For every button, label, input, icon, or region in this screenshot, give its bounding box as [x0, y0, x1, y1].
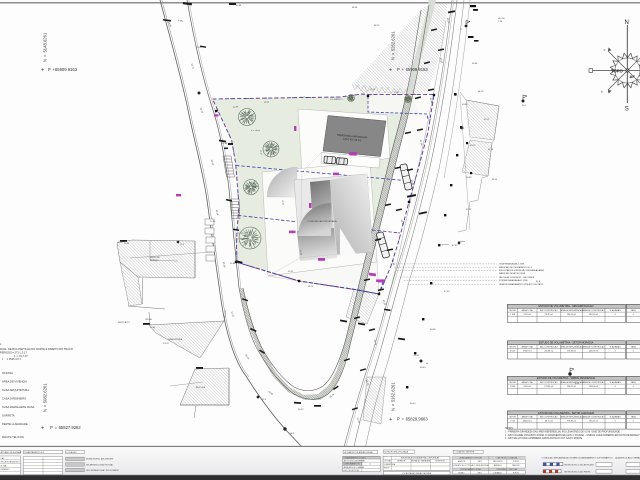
svg-text:4: 4 [633, 350, 634, 352]
svg-text:SARJETAO DE APOIO GUIA: SARJETAO DE APOIO GUIA [499, 272, 526, 275]
svg-text:CASA ARQUITETURA: CASA ARQUITETURA [2, 388, 29, 392]
svg-text:R 106: R 106 [510, 386, 515, 388]
svg-text:NOTAS:: NOTAS: [505, 427, 514, 430]
svg-text:N. ALVARAS: N. ALVARAS [610, 415, 621, 418]
svg-text:8150 m2: 8150 m2 [524, 386, 531, 388]
svg-text:OBS PROFIL / LEVATUAL: OBS PROFIL / LEVATUAL [496, 457, 517, 460]
svg-text:N. ALVARAS: N. ALVARAS [610, 345, 621, 348]
svg-text:47.30: 47.30 [444, 291, 450, 293]
svg-text:ESTUDO DE VOLUMETRIA - SETOR M: ESTUDO DE VOLUMETRIA - SETOR MORADIA [539, 342, 594, 345]
svg-text:PONTO: PONTO [513, 461, 520, 463]
svg-text:4: 4 [633, 314, 634, 316]
svg-text:+: + [389, 68, 392, 74]
svg-text:AREA TOTAL: AREA TOTAL [522, 381, 533, 384]
svg-text:N = 5082.6261: N = 5082.6261 [43, 383, 48, 412]
svg-text:SETOR: SETOR [509, 346, 516, 348]
svg-text:LAVOURDO: LAVOURDO [493, 460, 504, 463]
svg-text:COMPLEMENTO N: COMPLEMENTO N [344, 464, 361, 466]
svg-text:4: 4 [615, 350, 616, 352]
svg-text:4: 4 [370, 464, 371, 466]
svg-text:VELANTERIOLOGIA / ROT.NAL: VELANTERIOLOGIA / ROT.NAL [86, 463, 113, 466]
svg-text:CONDICAO IMPLANTACAO SOBRE LEV: CONDICAO IMPLANTACAO SOBRE LEVANTAMENTO … [542, 456, 640, 459]
svg-text:PERTE LLARADADE: PERTE LLARADADE [2, 422, 28, 426]
svg-text:PAV DE AR CONCRETO - CAL VERDE: PAV DE AR CONCRETO - CAL VERDE [499, 276, 535, 279]
svg-text:MURO DE: MURO DE [150, 257, 160, 259]
svg-text:AF: AF [630, 74, 636, 79]
svg-text:A PLANO DE ESCALA: A PLANO DE ESCALA [1, 451, 22, 454]
svg-text:50.96: 50.96 [124, 243, 130, 245]
svg-text:C QUADRO SINTESE: C QUADRO SINTESE [454, 451, 475, 454]
svg-text:a.v. abeto: a.v. abeto [251, 129, 261, 132]
svg-text:4: 4 [615, 386, 616, 388]
svg-text:LEVANTAMENTO N 2: LEVANTAMENTO N 2 [24, 451, 45, 454]
svg-text:L 1 1545 3 0.7: L 1 1545 3 0.7 [2, 357, 22, 361]
svg-text:TR: TR [573, 378, 576, 380]
svg-text:185.87 m2: 185.87 m2 [589, 421, 598, 423]
svg-text:TOPO: TOPO [611, 68, 624, 73]
svg-text:AREA DE IMPLANTACAO: AREA DE IMPLANTACAO [560, 345, 583, 348]
svg-text:N. ALVARAS: N. ALVARAS [610, 381, 621, 384]
svg-text:2 - EST VOLUME CONJUNTO FORM.: 2 - EST VOLUME CONJUNTO FORM. O GRANDEZA… [505, 434, 640, 437]
svg-text:+: + [41, 426, 44, 432]
svg-text:49.68: 49.68 [236, 5, 242, 7]
svg-text:46.40: 46.40 [420, 367, 426, 369]
svg-text:SARJETAO DE CRUZAMENTO: SARJETAO DE CRUZAMENTO [499, 266, 528, 269]
svg-text:SETOR: SETOR [509, 416, 516, 418]
svg-text:PROJETO ARQUITETO: PROJETO ARQUITETO [1, 461, 21, 464]
svg-text:AGENTE: AGENTE [458, 460, 466, 463]
svg-text:CASA JARDINEIRO: CASA JARDINEIRO [2, 397, 26, 401]
svg-text:L TOTAL: L TOTAL [384, 460, 391, 463]
svg-text:88.75 m2: 88.75 m2 [545, 421, 553, 423]
svg-text:48.70: 48.70 [308, 286, 314, 288]
svg-text:+: + [389, 417, 392, 423]
svg-text:ARL CONSTRUCAO: ARL CONSTRUCAO [540, 381, 558, 384]
svg-text:ROUTE TELICON: ROUTE TELICON [2, 435, 24, 439]
svg-text:48.96: 48.96 [352, 7, 358, 9]
svg-text:IMPLANTACAO/PLANIMETRIA COMPLE: IMPLANTACAO/PLANIMETRIA COMPLETA AR [401, 457, 440, 460]
svg-text:AREA DE CONSTRUCAO: AREA DE CONSTRUCAO [583, 345, 606, 348]
svg-text:AREA DE CONSTRUCAO: AREA DE CONSTRUCAO [583, 415, 606, 418]
svg-text:RUAL DE BUA PARTILHA DO NORTE: RUAL DE BUA PARTILHA DO NORTE E DIREITO … [0, 347, 73, 351]
svg-text:PISOS: PISOS [384, 467, 390, 469]
svg-text:48.70: 48.70 [374, 25, 380, 27]
svg-text:P +65909.9163: P +65909.9163 [48, 67, 78, 72]
svg-text:SETOR: SETOR [509, 382, 516, 384]
svg-text:AREA TOTAL: AREA TOTAL [522, 415, 533, 418]
svg-text:76.85 m2: 76.85 m2 [545, 314, 553, 316]
svg-text:L 108: L 108 [510, 314, 515, 316]
svg-text:LAVRADO: LAVRADO [494, 471, 503, 474]
svg-text:N = 5162.6261: N = 5162.6261 [391, 382, 396, 411]
svg-text:1 - PRIMEIRA GRANDEZA DAS AREA: 1 - PRIMEIRA GRANDEZA DAS AREA REFERENCI… [505, 431, 621, 434]
svg-text:LOCALIZACAO GERAL DA OBRA: LOCALIZACAO GERAL DA OBRA [402, 472, 432, 475]
svg-text:123.85 m2: 123.85 m2 [544, 386, 553, 388]
svg-text:ARL CONSTRUCAO: ARL CONSTRUCAO [540, 345, 558, 348]
svg-text:49.02: 49.02 [288, 271, 294, 273]
svg-text:PONTO: PONTO [513, 472, 520, 474]
svg-text:50.86: 50.86 [230, 263, 236, 265]
svg-text:DESENHO: DESENHO [1, 469, 10, 471]
svg-text:PV.50: PV.50 [196, 47, 202, 49]
svg-text:SONDATO IN LOTTO: SONDATO IN LOTTO [453, 464, 471, 467]
svg-text:LADO VERDE/LER AR: LADO VERDE/LER AR [470, 464, 489, 467]
svg-text:AREA DE CONSTRUCAO: AREA DE CONSTRUCAO [583, 309, 606, 312]
svg-text:4: 4 [615, 421, 616, 423]
svg-text:a.v. gertevo: a.v. gertevo [438, 243, 450, 246]
svg-text:4: 4 [633, 386, 634, 388]
svg-text:+: + [41, 68, 44, 74]
svg-text:CASA RAMALHETE RASA: CASA RAMALHETE RASA [2, 405, 35, 409]
svg-text:281.88 m2: 281.88 m2 [544, 350, 553, 352]
svg-text:TAXA: TAXA [631, 415, 637, 418]
svg-text:N = 5262.6261: N = 5262.6261 [391, 31, 396, 60]
svg-text:15.04: 15.04 [370, 89, 376, 91]
svg-text:N. ALVARAS: N. ALVARAS [610, 309, 621, 312]
svg-text:GUIA REBAIXADA A 1.17ML: GUIA REBAIXADA A 1.17ML [499, 263, 525, 266]
svg-text:B PROPOSTA UTILIZADA: B PROPOSTA UTILIZADA [385, 451, 409, 454]
svg-text:PLANO: PLANO [458, 471, 465, 474]
svg-text:ARL CONSTRUCAO: ARL CONSTRUCAO [540, 415, 558, 418]
svg-text:OFICINA: OFICINA [2, 371, 13, 375]
svg-text:AVENIDO: AVENIDO [494, 464, 503, 467]
svg-text:188.04 m2: 188.04 m2 [589, 386, 598, 388]
svg-text:P + 65909.9163: P + 65909.9163 [397, 67, 428, 72]
svg-text:PANORO: PANORO [512, 464, 520, 467]
svg-text:45.90: 45.90 [414, 355, 420, 357]
svg-text:4: 4 [633, 421, 634, 423]
svg-text:V.D. ABERTO: V.D. ABERTO [330, 98, 343, 101]
svg-text:9125 m2: 9125 m2 [524, 314, 531, 316]
svg-text:TELHA: TELHA [145, 318, 152, 321]
svg-text:METROS ESC 1/200 AR PLANO: METROS ESC 1/200 AR PLANO [565, 463, 595, 466]
svg-text:PONDERAMENTO VITAL: PONDERAMENTO VITAL [460, 468, 481, 471]
svg-text:778.88 m2: 778.88 m2 [567, 421, 576, 423]
svg-text:REG: REG [478, 472, 482, 474]
svg-text:EDICULA: EDICULA [196, 386, 206, 389]
svg-text:LOCACAO: LOCACAO [67, 451, 77, 454]
svg-text:G 105: G 105 [510, 421, 515, 423]
svg-text:10.40: 10.40 [394, 92, 400, 94]
svg-text:51.32: 51.32 [238, 233, 244, 235]
svg-text:AREA TOTAL: AREA TOTAL [522, 309, 533, 312]
svg-text:48.10: 48.10 [492, 179, 498, 181]
svg-text:MORADIA / GARAGEM: MORADIA / GARAGEM [411, 460, 430, 463]
svg-text:AR NO MODULAGEM MR: AR NO MODULAGEM MR [344, 460, 366, 463]
svg-text:184.04 m2: 184.04 m2 [567, 314, 576, 316]
svg-text:49.52: 49.52 [298, 409, 304, 411]
svg-text:ARL CONSTRUCAO: ARL CONSTRUCAO [540, 309, 558, 312]
svg-text:AREA DE IMPLANTACAO: AREA DE IMPLANTACAO [560, 415, 583, 418]
svg-text:EXECUTAR DE GUIA NOVA / CALCAD: EXECUTAR DE GUIA NOVA / CALCADA A FAZER [499, 269, 545, 272]
svg-text:ESTUDO DE VOLUMETRIA - SETOR R: ESTUDO DE VOLUMETRIA - SETOR RESIDENCIA [537, 377, 595, 380]
svg-text:AREA DE IMPLANTACAO: AREA DE IMPLANTACAO [560, 381, 583, 384]
svg-text:DIVERSOS: DIVERSOS [435, 461, 445, 463]
svg-text:BL-02: BL-02 [478, 91, 484, 93]
svg-text:4862.8 m2: 4862.8 m2 [523, 421, 532, 423]
svg-text:50.40: 50.40 [150, 327, 156, 329]
svg-text:1 = 91.7 07: 1 = 91.7 07 [14, 354, 28, 358]
svg-text:N 124: N 124 [163, 343, 169, 345]
svg-text:138.09 m2: 138.09 m2 [567, 386, 576, 388]
svg-text:LEVANTE: LEVANTE [397, 460, 406, 463]
svg-text:PRECISADO - SOLTO AV: PRECISADO - SOLTO AV [497, 468, 519, 471]
svg-text:S: S [625, 107, 629, 113]
svg-text:ESTUDO DE VOLUMETRIA - SEM EDI: ESTUDO DE VOLUMETRIA - SEM EDIFICACAO [538, 305, 593, 308]
svg-text:AREA DE VIVENCIA: AREA DE VIVENCIA [2, 380, 27, 384]
svg-text:AREA DE CONSTRUCAO: AREA DE CONSTRUCAO [583, 381, 606, 384]
svg-text:GEO ESTANDLOGIA / TEL LETUARIO: GEO ESTANDLOGIA / TEL LETUARIO [86, 469, 119, 472]
svg-text:A QUADRO DE AREAS GERAL: A QUADRO DE AREAS GERAL [345, 451, 374, 454]
svg-text:CASA VIZINHA: CASA VIZINHA [168, 338, 183, 341]
svg-text:COBERTURA: COBERTURA [384, 463, 396, 466]
svg-text:178.88 m2: 178.88 m2 [567, 350, 576, 352]
svg-text:51.80: 51.80 [210, 221, 216, 223]
svg-text:PONTAS REBAIXADA A 1.12ML: PONTAS REBAIXADA A 1.12ML [499, 279, 529, 282]
svg-text:46.02: 46.02 [410, 403, 416, 405]
svg-text:49.66: 49.66 [462, 104, 468, 106]
svg-text:REG: REG [478, 461, 482, 463]
svg-text:49.12: 49.12 [484, 119, 490, 121]
svg-text:MURO ALTO: MURO ALTO [118, 321, 130, 324]
svg-text:CONSTRUCAO PROJETADA: CONSTRUCAO PROJETADA [307, 220, 337, 223]
svg-text:47.82: 47.82 [452, 245, 458, 247]
svg-text:ARRIMO: ARRIMO [150, 259, 159, 262]
svg-text:380.91 m2: 380.91 m2 [589, 314, 598, 316]
svg-text:LEVANTAMENTO TOPO AR: LEVANTAMENTO TOPO AR [459, 457, 483, 460]
svg-text:9750.8 m2: 9750.8 m2 [523, 350, 532, 352]
svg-text:TAXA: TAXA [631, 381, 637, 384]
svg-text:PERIODO = 271 L.0.17: PERIODO = 271 L.0.17 [0, 350, 27, 354]
svg-text:AREA TOTAL: AREA TOTAL [522, 345, 533, 348]
svg-text:GUIA DE REBAIXAMENTO (PR) ALTO: GUIA DE REBAIXAMENTO (PR) ALTO DE PA RJ [499, 283, 543, 286]
svg-text:P = 65827.9282: P = 65827.9282 [50, 425, 81, 430]
svg-text:4: 4 [615, 314, 616, 316]
svg-text:46.88: 46.88 [430, 329, 436, 331]
svg-text:ESTUDO DE VOLUMETRIA - SETOR G: ESTUDO DE VOLUMETRIA - SETOR GARAGEM [538, 412, 594, 415]
svg-text:SETOR: SETOR [509, 310, 516, 312]
svg-text:3 - EST SALLO CADA A PRIMEIRA: 3 - EST SALLO CADA A PRIMEIRA CARTA ANTO… [505, 437, 583, 440]
svg-text:GARFETA: GARFETA [2, 414, 15, 418]
svg-text:AREA DE IMPLANTACAO: AREA DE IMPLANTACAO [560, 309, 583, 312]
svg-text:METROS ESC 1/400 PERFIL: METROS ESC 1/400 PERFIL [565, 471, 592, 473]
svg-text:188.59 m2: 188.59 m2 [589, 350, 598, 352]
svg-text:MO.55: MO.55 [498, 18, 505, 20]
svg-text:52.86: 52.86 [222, 143, 228, 145]
svg-text:49.80: 49.80 [472, 63, 478, 65]
svg-text:P = 65829.9663: P = 65829.9663 [397, 417, 428, 422]
svg-text:N = 5148.6261: N = 5148.6261 [43, 32, 48, 62]
svg-text:M 107: M 107 [510, 350, 515, 352]
svg-text:A. VIAL: A. VIAL [1, 464, 7, 467]
svg-text:48.96: 48.96 [466, 177, 472, 179]
svg-text:TAXA: TAXA [631, 345, 637, 348]
svg-text:ENTRA VIGENC. ABC ATELIER: ENTRA VIGENC. ABC ATELIER [86, 458, 114, 461]
svg-text:TAXA: TAXA [631, 309, 637, 312]
svg-text:N: N [625, 20, 629, 26]
svg-text:AREA MODULO GANCA: AREA MODULO GANCA [344, 466, 365, 469]
svg-text:LEVANTAMENTO DO GEO: LEVANTAMENTO DO GEO [344, 457, 367, 460]
svg-text:ESC PROJETO M2: ESC PROJETO M2 [344, 470, 360, 472]
svg-text:49.22: 49.22 [470, 145, 476, 147]
